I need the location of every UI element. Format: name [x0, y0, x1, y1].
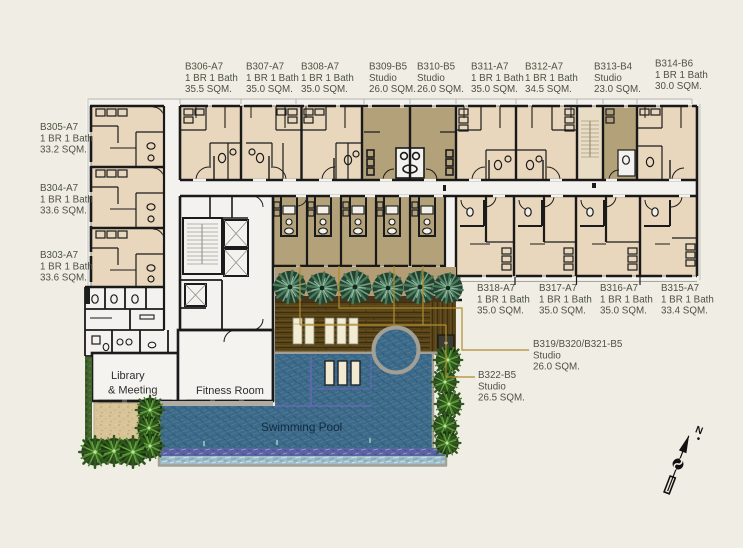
svg-text:33.4 SQM.: 33.4 SQM.: [661, 306, 708, 317]
svg-text:35.0 SQM.: 35.0 SQM.: [539, 306, 586, 317]
svg-text:1 BR 1 Bath: 1 BR 1 Bath: [661, 294, 714, 305]
svg-text:1 BR 1 Bath: 1 BR 1 Bath: [40, 194, 93, 205]
svg-text:1 BR 1 Bath: 1 BR 1 Bath: [655, 70, 708, 81]
svg-text:1 BR 1 Bath: 1 BR 1 Bath: [40, 133, 93, 144]
svg-text:30.0 SQM.: 30.0 SQM.: [655, 81, 702, 92]
svg-text:35.0 SQM.: 35.0 SQM.: [600, 306, 647, 317]
svg-text:B309-B5: B309-B5: [369, 62, 408, 73]
svg-text:B304-A7: B304-A7: [40, 183, 78, 194]
svg-text:B310-B5: B310-B5: [417, 62, 456, 73]
svg-text:1 BR 1 Bath: 1 BR 1 Bath: [40, 261, 93, 272]
svg-text:1 BR 1 Bath: 1 BR 1 Bath: [471, 73, 524, 84]
svg-text:1 BR 1 Bath: 1 BR 1 Bath: [600, 294, 653, 305]
svg-text:33.6 SQM.: 33.6 SQM.: [40, 273, 87, 284]
svg-text:33.2 SQM.: 33.2 SQM.: [40, 145, 87, 156]
svg-text:B317-A7: B317-A7: [539, 283, 577, 294]
svg-text:Studio: Studio: [417, 73, 445, 84]
svg-text:26.0 SQM.: 26.0 SQM.: [533, 362, 580, 373]
svg-text:1 BR 1 Bath: 1 BR 1 Bath: [185, 73, 238, 84]
svg-text:Studio: Studio: [369, 73, 397, 84]
svg-text:B322-B5: B322-B5: [478, 370, 517, 381]
svg-text:1 BR 1 Bath: 1 BR 1 Bath: [477, 294, 530, 305]
svg-text:35.0 SQM.: 35.0 SQM.: [471, 84, 518, 95]
svg-text:1 BR 1 Bath: 1 BR 1 Bath: [539, 294, 592, 305]
svg-text:33.6 SQM.: 33.6 SQM.: [40, 206, 87, 217]
svg-text:23.0 SQM.: 23.0 SQM.: [594, 84, 641, 95]
svg-text:35.0 SQM.: 35.0 SQM.: [477, 306, 524, 317]
svg-text:Studio: Studio: [478, 381, 506, 392]
svg-text:34.5 SQM.: 34.5 SQM.: [525, 84, 572, 95]
svg-text:B315-A7: B315-A7: [661, 283, 699, 294]
svg-text:& Meeting: & Meeting: [108, 385, 158, 397]
svg-text:B314-B6: B314-B6: [655, 59, 694, 70]
svg-text:B311-A7: B311-A7: [471, 62, 508, 73]
svg-text:Studio: Studio: [533, 350, 561, 361]
svg-text:B313-B4: B313-B4: [594, 62, 633, 73]
svg-text:B316-A7: B316-A7: [600, 283, 638, 294]
svg-text:Fitness Room: Fitness Room: [196, 385, 264, 397]
svg-text:26.5 SQM.: 26.5 SQM.: [478, 393, 525, 404]
svg-text:35.0 SQM.: 35.0 SQM.: [301, 84, 348, 95]
svg-text:B308-A7: B308-A7: [301, 62, 339, 73]
svg-text:26.0 SQM.: 26.0 SQM.: [369, 84, 416, 95]
svg-text:35.5 SQM.: 35.5 SQM.: [185, 84, 232, 95]
svg-text:B312-A7: B312-A7: [525, 62, 563, 73]
svg-text:B319/B320/B321-B5: B319/B320/B321-B5: [533, 339, 623, 350]
svg-text:1 BR 1 Bath: 1 BR 1 Bath: [301, 73, 354, 84]
svg-text:B306-A7: B306-A7: [185, 62, 223, 73]
svg-text:Swimming Pool: Swimming Pool: [261, 420, 342, 434]
svg-text:B307-A7: B307-A7: [246, 62, 284, 73]
svg-text:Studio: Studio: [594, 73, 622, 84]
svg-text:1 BR 1 Bath: 1 BR 1 Bath: [525, 73, 578, 84]
svg-text:1 BR 1 Bath: 1 BR 1 Bath: [246, 73, 299, 84]
svg-text:B303-A7: B303-A7: [40, 250, 78, 261]
svg-text:26.0 SQM.: 26.0 SQM.: [417, 84, 464, 95]
svg-text:35.0 SQM.: 35.0 SQM.: [246, 84, 293, 95]
svg-text:B305-A7: B305-A7: [40, 122, 78, 133]
svg-text:B318-A7: B318-A7: [477, 283, 515, 294]
svg-text:Library: Library: [111, 370, 145, 382]
